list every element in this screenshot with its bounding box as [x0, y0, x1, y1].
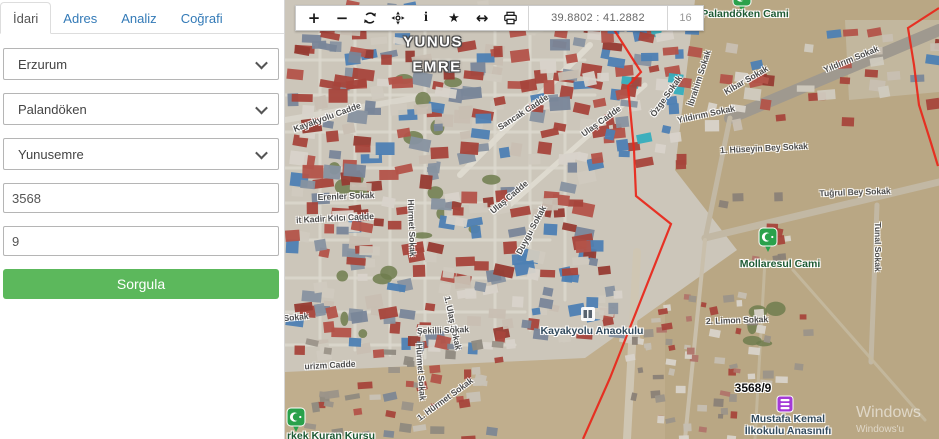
- zoom-in-icon[interactable]: +: [304, 8, 324, 28]
- building-icon[interactable]: [581, 307, 595, 321]
- province-select[interactable]: Erzurum: [3, 48, 279, 80]
- chevron-down-icon: [255, 101, 268, 114]
- tab-cografi[interactable]: Coğrafi: [169, 3, 235, 33]
- tab-adres[interactable]: Adres: [51, 3, 109, 33]
- map-label: Erenler Sokak: [317, 190, 374, 202]
- zoom-level-readout: 16: [667, 6, 703, 30]
- map-label: Hürmet Sokak: [406, 199, 418, 256]
- coordinates-readout: 39.8802 : 41.2882: [528, 6, 667, 30]
- map-label: Şekilli Sokak: [417, 324, 469, 336]
- map-label: Tunal Sokak: [873, 222, 883, 271]
- neighborhood-select-value: Yunusemre: [18, 147, 84, 162]
- zoom-out-icon[interactable]: −: [332, 8, 352, 28]
- map-label: EMRE: [412, 59, 461, 76]
- query-form: Erzurum Palandöken Yunusemre Sorgula: [0, 34, 284, 299]
- ada-input[interactable]: [3, 183, 279, 213]
- map-poi-label[interactable]: Mollaresul Cami: [740, 258, 821, 270]
- favorite-icon[interactable]: ★: [444, 8, 464, 28]
- locate-icon[interactable]: [388, 8, 408, 28]
- district-select-value: Palandöken: [18, 102, 87, 117]
- chevron-down-icon: [255, 56, 268, 69]
- map-toolbar-icons: + − i ★ ↔: [296, 6, 528, 30]
- parsel-input[interactable]: [3, 226, 279, 256]
- measure-icon[interactable]: ↔: [472, 8, 492, 28]
- map-poi-label[interactable]: Palandöken Cami: [701, 8, 789, 20]
- map-toolbar: + − i ★ ↔ 39.8802 : 41.2882 16: [295, 5, 704, 31]
- tab-bar: İdari Adres Analiz Coğrafi: [0, 0, 284, 34]
- info-icon[interactable]: i: [416, 8, 436, 28]
- map-view[interactable]: YUNUSEMREPalandöken CamiYıldırım SokakKi…: [285, 0, 939, 439]
- map-poi-label[interactable]: Mustafa Kemal: [751, 413, 825, 425]
- app-window: İdari Adres Analiz Coğrafi Erzurum Palan…: [0, 0, 939, 439]
- tab-analiz[interactable]: Analiz: [109, 3, 168, 33]
- parcel-label: 3568/9: [735, 381, 772, 395]
- map-label: YUNUS: [403, 34, 463, 51]
- province-select-value: Erzurum: [18, 57, 67, 72]
- refresh-icon[interactable]: [360, 8, 380, 28]
- map-poi-label[interactable]: rkek Kuran Kursu: [287, 430, 375, 439]
- map-poi-label[interactable]: Kayakyolu Anaokulu: [541, 325, 644, 337]
- map-poi-label[interactable]: İlkokulu Anasınıfı: [745, 425, 832, 437]
- district-select[interactable]: Palandöken: [3, 93, 279, 125]
- chevron-down-icon: [255, 146, 268, 159]
- neighborhood-select[interactable]: Yunusemre: [3, 138, 279, 170]
- school-marker[interactable]: [777, 396, 793, 412]
- print-icon[interactable]: [500, 8, 520, 28]
- tab-idari[interactable]: İdari: [0, 2, 51, 34]
- sidebar: İdari Adres Analiz Coğrafi Erzurum Palan…: [0, 0, 285, 439]
- sorgula-button[interactable]: Sorgula: [3, 269, 279, 299]
